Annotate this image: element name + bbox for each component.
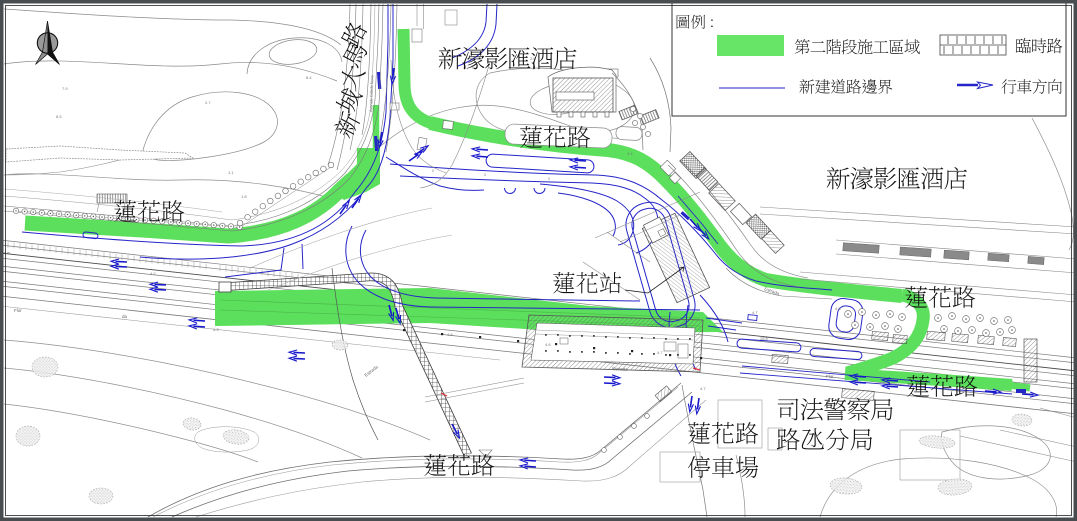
svg-text:Flor: Flor xyxy=(14,308,22,313)
svg-text:1.8: 1.8 xyxy=(241,194,247,199)
svg-text:da: da xyxy=(122,314,128,319)
svg-text:1.1: 1.1 xyxy=(228,170,234,175)
svg-text:28.5: 28.5 xyxy=(760,336,769,341)
svg-text:4.7: 4.7 xyxy=(700,386,706,391)
svg-text:4.7: 4.7 xyxy=(752,310,758,315)
svg-text:2.7: 2.7 xyxy=(205,100,211,105)
svg-text:4.7: 4.7 xyxy=(657,350,663,355)
svg-text:4.8: 4.8 xyxy=(447,332,453,337)
svg-text:4.4: 4.4 xyxy=(627,151,633,156)
svg-text:8.4: 8.4 xyxy=(306,75,312,80)
svg-text:8.5: 8.5 xyxy=(56,114,62,119)
svg-text:4.8: 4.8 xyxy=(545,342,551,347)
svg-text:4.2: 4.2 xyxy=(150,271,156,276)
svg-text:7.9: 7.9 xyxy=(62,86,68,91)
svg-text:4.3: 4.3 xyxy=(213,327,219,332)
svg-text:4.8: 4.8 xyxy=(835,306,841,311)
svg-text:Flor: Flor xyxy=(826,374,834,379)
svg-text:rua: rua xyxy=(4,250,11,255)
svg-text::: : xyxy=(710,14,714,30)
